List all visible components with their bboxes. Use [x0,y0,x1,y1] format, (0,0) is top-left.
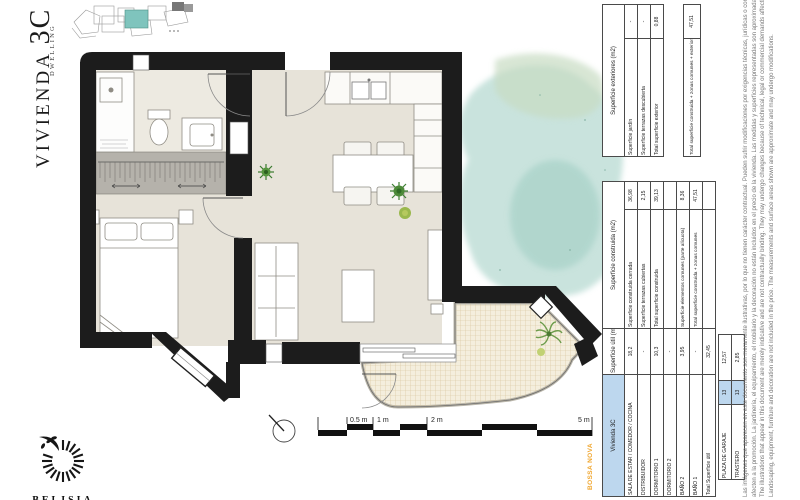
disclaimer-block: Las imágenes que aparecen en este docume… [742,3,796,497]
room-name: DORMITORIO 2 [664,375,677,497]
table-row: DORMITORIO 2 - [664,182,677,497]
room-name: BAÑO 2 [677,375,690,497]
room-name: BAÑO 1 [690,375,703,497]
util-value: - [690,329,703,375]
garage-table: PLAZA DE GARAJE 13 12,57 TRASTERO 13 2,8… [718,334,745,480]
scale-label: 1 m [377,417,389,424]
room-name: Total Superficie útil [703,375,716,497]
util-value: - [664,329,677,375]
kitchen-tall-units [414,104,442,192]
disclaimer-line: Las imágenes que aparecen en este docume… [742,3,751,497]
table-row: BAÑO 1 - Total superficie construida + z… [690,182,703,497]
bedroom-exterior-door [172,347,215,386]
sink-vanity [182,118,222,150]
table-row: Total Superficie útil 32,45 [703,182,716,497]
util-value: 32,45 [703,329,716,375]
page-subtitle: DWELLING [47,16,59,76]
project-label-block: BOSSA NOVA [585,436,597,490]
table-header-vivienda: Vivienda 3C [603,375,625,497]
garage-value: 12,57 [719,335,732,381]
grand-total-value: 47,51 [684,4,701,38]
scale-bar: 0.5 m 1 m 2 m 5 m [318,417,592,436]
surface-table-main: Vivienda 3C Superficie útil (m2) Superfi… [602,181,716,497]
scale-label: 0.5 m [350,417,368,424]
util-value: 10,3 [651,329,664,375]
disclaimer-line: afecten a la promoción. La jardinería, e… [751,3,760,497]
ext-label: Superficie jardín [625,39,638,157]
table-row: DORMITORIO 1 10,3 Total superficie const… [651,182,664,497]
cons-value: 39,13 [651,182,664,210]
brand-name: BELISIA [32,495,94,500]
room-name: DISTRIBUIDOR [638,375,651,497]
disclaimer-line: Landscaping, equipment, furniture and de… [768,3,777,497]
sofa [255,243,298,340]
ext-label: Superficie terrazas descubierta [638,39,651,157]
cons-label: Total superficie construida + zonas comu… [690,210,703,329]
table-row: DISTRIBUIDOR - Superficie terrazas cubie… [638,182,651,497]
ext-label: Total superficie exterior [651,39,664,157]
table-header-util: Superficie útil (m2) [603,329,625,375]
table-row: BAÑO 2 3,95 Superficie elementos comunes… [677,182,690,497]
room-name: SALA DE ESTAR / COMEDOR / COCINA [625,375,638,497]
table-row: SALA DE ESTAR / COMEDOR / COCINA 18,2 Su… [625,182,638,497]
cons-value: 8,36 [677,182,690,210]
cons-value: 36,98 [625,182,638,210]
ext-value: 0,88 [651,4,664,38]
bed [100,218,178,338]
table-row: PLAZA DE GARAJE 13 12,57 [719,335,732,480]
plant [258,164,274,180]
table-row: Total superficie exterior 0,88 [651,4,664,156]
wardrobe [96,152,226,194]
floorplan-sheet: 0.5 m 1 m 2 m 5 m [0,0,800,500]
project-label: BOSSA NOVA [585,436,597,490]
shower [96,72,134,152]
table-row-grand-total: Total superficie construida + zonas comu… [684,4,701,156]
disclaimer-line: The illustrations that appear in this do… [759,3,768,497]
dining-chair [344,187,371,205]
cons-value: 47,51 [690,182,703,210]
surface-tables-area: Vivienda 3C Superficie útil (m2) Superfi… [602,3,754,497]
sliding-glass-door [360,344,456,362]
cons-label: Total superficie construida [651,210,664,329]
table-row: Superficie jardín - [625,4,638,156]
sheet-subtitle-block: DWELLING [47,16,59,76]
table-row: Superficie terrazas descubierta - [638,4,651,156]
table-header-construida: Superficie construida (m2) [603,182,625,329]
scale-label: 2 m [431,417,443,424]
room-name: DORMITORIO 1 [651,375,664,497]
cons-label: Superficie elementos comunes (parte alíc… [677,210,690,329]
kitchen-counter [325,72,442,104]
scale-label: 5 m [578,417,590,424]
plant [390,182,408,200]
garage-label: PLAZA DE GARAJE [719,405,732,480]
brand-logo-icon: BELISIA [32,436,94,500]
util-value: 3,95 [677,329,690,375]
key-plan-unit-highlight [125,10,148,28]
ext-value: - [638,4,651,38]
north-arrow-icon [269,415,295,442]
util-value: - [638,329,651,375]
table-header-exteriores: Superficie exteriores (m2) [603,4,625,156]
cons-label: Superficie terrazas cubiertas [638,210,651,329]
small-plant [537,348,545,356]
watercolor-decoration [460,53,625,298]
nightstand [179,210,193,224]
cons-label: Superficie construida cerrada [625,210,638,329]
coffee-table [342,270,374,322]
util-value: 18,2 [625,329,638,375]
grand-total-label: Total superficie construida + zonas comu… [684,39,701,157]
surface-table-exterior: Superficie exteriores (m2) Superficie ja… [602,4,701,157]
cons-value: 2,15 [638,182,651,210]
key-plan [72,2,193,38]
garage-number: 13 [719,381,732,405]
plant [399,207,411,219]
ext-value: - [625,4,638,38]
